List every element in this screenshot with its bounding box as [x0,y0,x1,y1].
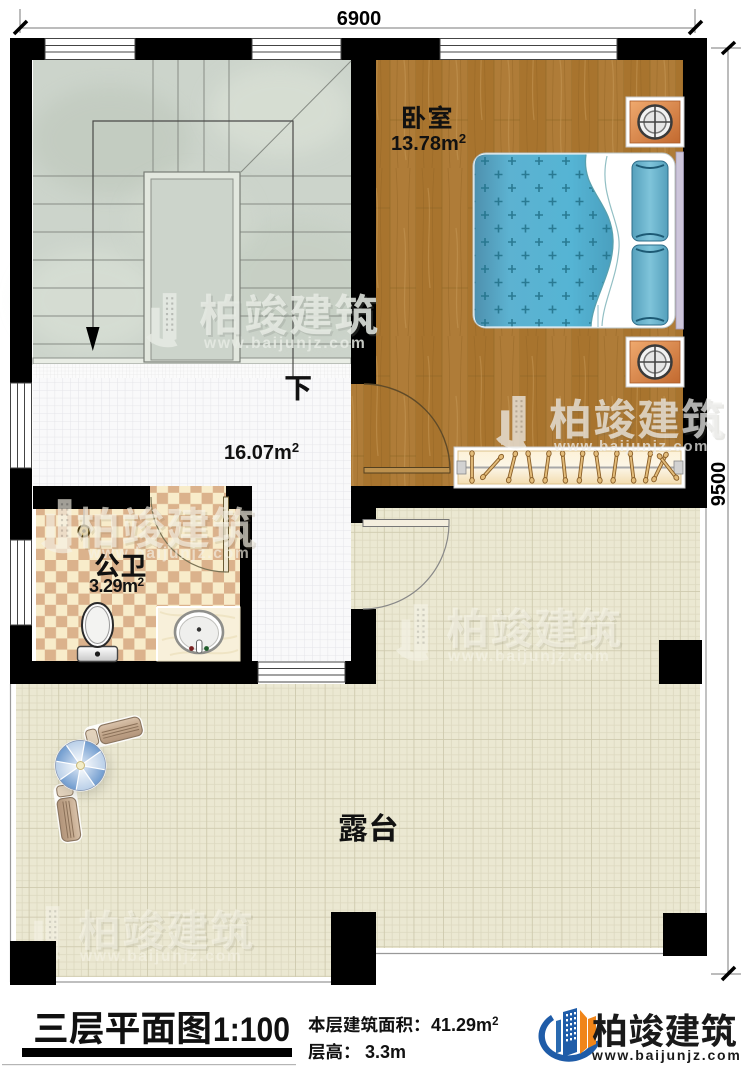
svg-text:www.baijunjz.com: www.baijunjz.com [553,438,709,455]
svg-text:1:100: 1:100 [213,1011,290,1049]
svg-text:6900: 6900 [337,8,382,30]
svg-text:13.78m2: 13.78m2 [391,131,466,155]
svg-text:16.07m2: 16.07m2 [224,440,299,464]
svg-text:3.29m2: 3.29m2 [89,575,145,596]
svg-text:www.baijunjz.com: www.baijunjz.com [79,948,243,965]
svg-text:3.3m: 3.3m [365,1042,406,1062]
svg-text:9500: 9500 [708,462,730,507]
svg-text:www.baijunjz.com: www.baijunjz.com [203,335,367,352]
svg-text:www.baijunjz.com: www.baijunjz.com [591,1047,742,1063]
svg-text:www.baijunjz.com: www.baijunjz.com [447,648,611,665]
svg-text:41.29m2: 41.29m2 [431,1015,498,1035]
